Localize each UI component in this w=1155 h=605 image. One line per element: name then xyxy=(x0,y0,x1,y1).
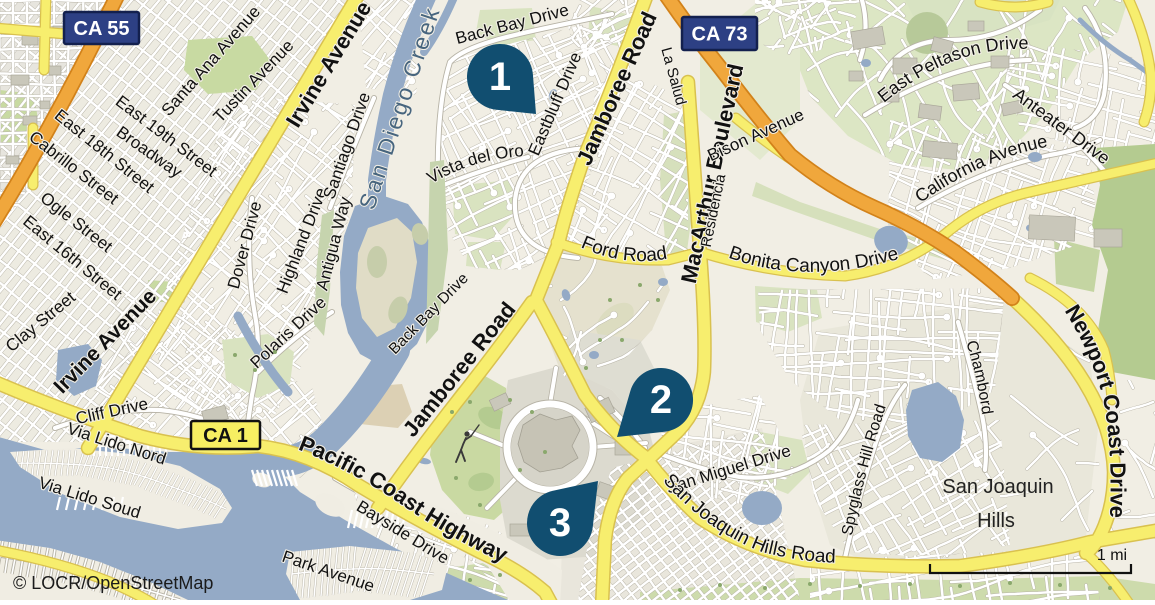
svg-text:© LOCR/OpenStreetMap: © LOCR/OpenStreetMap xyxy=(13,573,213,593)
svg-text:CA 1: CA 1 xyxy=(203,425,248,447)
svg-text:CA 55: CA 55 xyxy=(74,18,130,40)
svg-text:2: 2 xyxy=(650,378,672,422)
svg-text:CA 73: CA 73 xyxy=(692,24,748,46)
svg-text:3: 3 xyxy=(549,501,571,545)
svg-text:1: 1 xyxy=(489,55,511,99)
svg-text:1 mi: 1 mi xyxy=(1097,547,1127,564)
svg-text:Hills: Hills xyxy=(977,510,1015,532)
svg-text:San Joaquin: San Joaquin xyxy=(942,476,1053,498)
